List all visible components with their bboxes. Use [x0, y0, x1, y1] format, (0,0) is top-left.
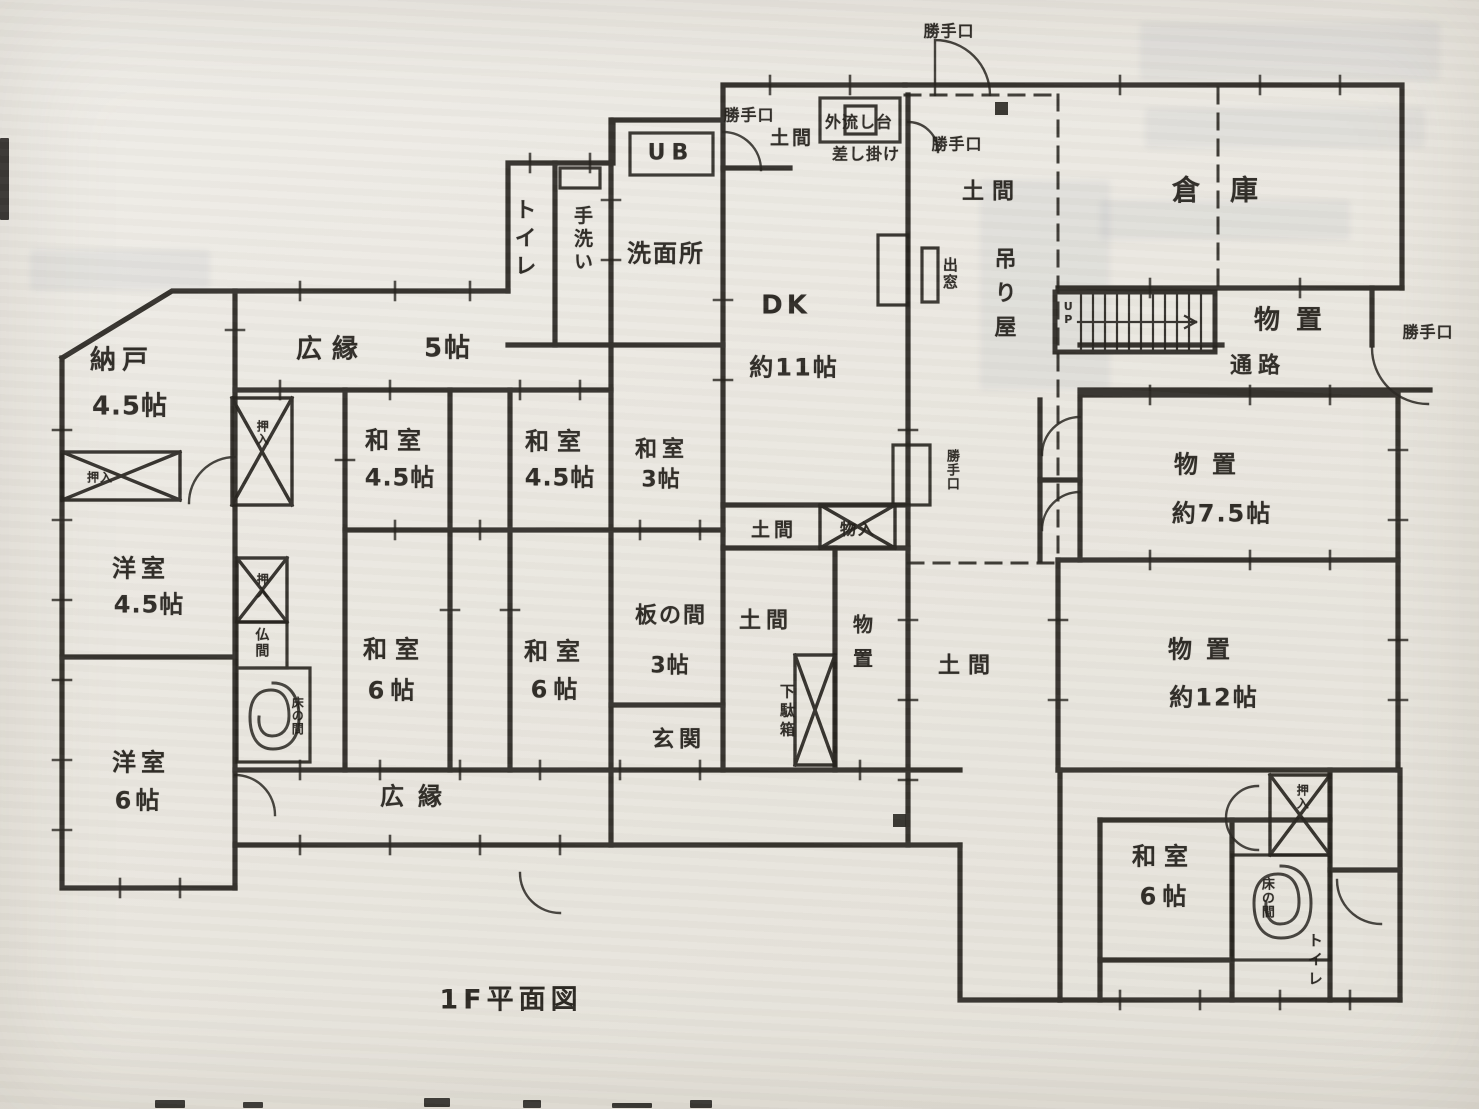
label-nando-size: 4.5帖	[92, 393, 168, 420]
label-katteguchi-3: 勝手口	[931, 137, 982, 154]
label-genkan: 玄関	[652, 728, 706, 751]
label-dk: DK	[761, 292, 811, 319]
label-washitsu-6-size: 6帖	[1140, 884, 1193, 909]
label-katteguchi-2: 勝手口	[923, 24, 974, 41]
label-monooki-column: 物置	[851, 614, 872, 682]
label-itanoma: 板の間	[635, 604, 707, 627]
label-washitsu-1-size: 4.5帖	[365, 465, 436, 490]
label-tsuuro: 通路	[1230, 354, 1286, 377]
label-monoire: 物入	[840, 522, 876, 539]
label-itanoma-size: 3帖	[650, 654, 689, 677]
scanned-floorplan-page: 納戸4.5帖広縁5帖トイレ手洗いUB洗面所勝手口土間外流し台差し掛け勝手口勝手口…	[0, 0, 1479, 1109]
label-washitsu-2: 和室	[525, 429, 589, 454]
label-washitsu-2-size: 4.5帖	[525, 465, 596, 490]
label-doma-center-1: 土間	[751, 521, 797, 541]
label-senmenjo: 洗面所	[627, 241, 705, 266]
label-oshiire-2: 押入	[87, 472, 113, 485]
label-doma-top: 土間	[962, 180, 1022, 203]
label-hiroen-top: 広縁	[296, 336, 368, 363]
label-katteguchi-5: 勝手口	[944, 449, 958, 491]
label-monooki-1: 物置	[1254, 307, 1338, 334]
room-labels-layer: 納戸4.5帖広縁5帖トイレ手洗いUB洗面所勝手口土間外流し台差し掛け勝手口勝手口…	[0, 0, 1479, 1109]
label-youshitsu-1-size: 4.5帖	[114, 592, 185, 617]
label-washitsu-6: 和室	[1132, 844, 1196, 869]
label-sotonagashidai: 外流し台	[825, 115, 893, 132]
label-oshiire-4: 押入	[1296, 784, 1309, 810]
label-washitsu-3-size: 3帖	[641, 468, 680, 491]
label-doma-kitchen: 土間	[770, 129, 814, 149]
label-ub: UB	[648, 141, 695, 164]
label-youshitsu-2: 洋室	[112, 750, 170, 775]
label-toilet-2: トイレ	[1306, 933, 1322, 990]
label-washitsu-4: 和室	[363, 637, 427, 662]
label-tokonoma-1: 床の間	[291, 697, 304, 736]
label-doma-center-3: 土間	[938, 654, 998, 677]
label-monooki-3-size: 約12帖	[1169, 685, 1258, 710]
label-monooki-2: 物置	[1174, 452, 1250, 477]
label-washitsu-5-size: 6帖	[531, 677, 584, 702]
label-demado: 出窓	[941, 257, 957, 291]
label-tsuriya: 吊り屋	[991, 247, 1014, 349]
label-nando: 納戸	[90, 347, 154, 374]
label-washitsu-1: 和室	[365, 428, 429, 453]
label-washitsu-5: 和室	[524, 639, 588, 664]
label-monooki-3: 物置	[1168, 637, 1244, 662]
label-youshitsu-2-size: 6帖	[115, 788, 164, 813]
label-katteguchi-1: 勝手口	[723, 108, 774, 125]
plan-title: 1F平面図	[439, 978, 582, 1017]
label-washitsu-3: 和室	[635, 438, 689, 461]
label-tokonoma-2: 床の間	[1259, 877, 1273, 919]
label-dk-size: 約11帖	[749, 355, 838, 380]
label-katteguchi-4: 勝手口	[1402, 325, 1453, 342]
label-getabako: 下駄箱	[778, 684, 794, 741]
label-tearai: 手洗い	[571, 206, 591, 275]
label-monooki-2-size: 約7.5帖	[1172, 501, 1273, 526]
label-sashikake: 差し掛け	[832, 147, 900, 164]
label-hiroen-bottom: 広縁	[380, 784, 456, 809]
label-butsuma: 仏間	[254, 627, 269, 659]
label-hiroen-top-size: 5帖	[424, 335, 472, 362]
label-youshitsu-1: 洋室	[112, 556, 170, 581]
label-up: UP	[1062, 300, 1074, 326]
label-souko: 倉庫	[1172, 175, 1288, 204]
label-washitsu-4-size: 6帖	[368, 678, 421, 703]
label-oshiire-3: 押入	[256, 573, 269, 599]
label-doma-center-2: 土間	[739, 609, 793, 632]
label-oshiire-1: 押入	[256, 420, 269, 446]
label-toilet-1: トイレ	[511, 198, 534, 282]
